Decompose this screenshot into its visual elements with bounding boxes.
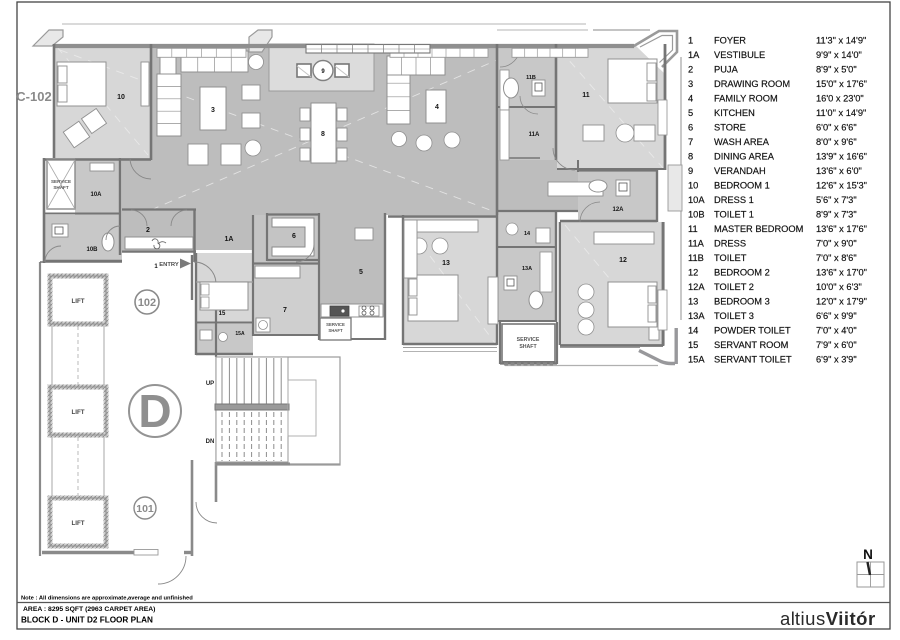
- svg-text:11: 11: [688, 224, 698, 234]
- svg-text:D: D: [138, 385, 171, 437]
- svg-text:TOILET 2: TOILET 2: [714, 282, 754, 292]
- svg-text:6'6" x 9'9": 6'6" x 9'9": [816, 311, 857, 321]
- svg-text:FAMILY ROOM: FAMILY ROOM: [714, 94, 778, 104]
- svg-text:11A: 11A: [688, 239, 705, 249]
- svg-text:POWDER TOILET: POWDER TOILET: [714, 326, 791, 336]
- svg-text:SERVANT TOILET: SERVANT TOILET: [714, 355, 792, 365]
- svg-text:SERVICE: SERVICE: [326, 322, 345, 327]
- svg-text:9'9" x 14'0": 9'9" x 14'0": [816, 50, 862, 60]
- svg-text:LIFT: LIFT: [71, 298, 84, 305]
- svg-text:8: 8: [688, 152, 693, 162]
- svg-text:SHAFT: SHAFT: [328, 328, 343, 333]
- svg-text:6: 6: [292, 233, 296, 240]
- svg-text:SERVICE: SERVICE: [517, 337, 540, 343]
- svg-text:11'3" x 14'9": 11'3" x 14'9": [816, 36, 866, 46]
- svg-text:12'6" x 15'3": 12'6" x 15'3": [816, 181, 867, 191]
- svg-text:10: 10: [117, 94, 125, 101]
- svg-text:15'0" x 17'6": 15'0" x 17'6": [816, 79, 867, 89]
- svg-text:DRESS: DRESS: [714, 239, 746, 249]
- svg-text:N: N: [863, 547, 873, 562]
- svg-text:11B: 11B: [526, 75, 536, 81]
- svg-text:SHAFT: SHAFT: [519, 344, 537, 350]
- svg-text:WASH AREA: WASH AREA: [714, 137, 770, 147]
- svg-text:2: 2: [146, 227, 150, 234]
- svg-text:DRESS 1: DRESS 1: [714, 195, 754, 205]
- svg-text:13A: 13A: [688, 311, 705, 321]
- svg-text:13A: 13A: [522, 266, 532, 272]
- svg-text:13'6" x 6'0": 13'6" x 6'0": [816, 166, 862, 176]
- svg-text:7'9" x 6'0": 7'9" x 6'0": [816, 340, 857, 350]
- svg-text:8'9" x 5'0": 8'9" x 5'0": [816, 65, 857, 75]
- svg-text:16'0 x 23'0": 16'0 x 23'0": [816, 94, 864, 104]
- svg-text:15A: 15A: [235, 331, 245, 337]
- svg-text:12: 12: [619, 257, 627, 264]
- svg-text:LIFT: LIFT: [71, 409, 84, 416]
- svg-text:11B: 11B: [688, 253, 704, 263]
- svg-text:101: 101: [136, 503, 154, 515]
- svg-text:8: 8: [321, 131, 325, 138]
- svg-text:3: 3: [211, 107, 215, 114]
- svg-text:7'0" x 4'0": 7'0" x 4'0": [816, 326, 857, 336]
- svg-text:1A: 1A: [225, 236, 234, 243]
- svg-text:altiusViitór: altiusViitór: [780, 608, 876, 629]
- svg-text:10'0" x 6'3": 10'0" x 6'3": [816, 282, 862, 292]
- svg-text:VESTIBULE: VESTIBULE: [714, 50, 765, 60]
- svg-text:3: 3: [688, 79, 693, 89]
- svg-text:8'9" x 7'3": 8'9" x 7'3": [816, 210, 857, 220]
- svg-text:13: 13: [688, 297, 698, 307]
- svg-text:4: 4: [688, 94, 693, 104]
- svg-text:BEDROOM 2: BEDROOM 2: [714, 268, 770, 278]
- svg-text:STORE: STORE: [714, 123, 746, 133]
- svg-text:C-102: C-102: [16, 89, 51, 104]
- svg-text:DRAWING ROOM: DRAWING ROOM: [714, 79, 790, 89]
- svg-text:TOILET 1: TOILET 1: [714, 210, 754, 220]
- svg-text:7'0" x 8'6": 7'0" x 8'6": [816, 253, 857, 263]
- svg-text:12'0" x 17'9": 12'0" x 17'9": [816, 297, 867, 307]
- svg-text:13'9" x 16'6": 13'9" x 16'6": [816, 152, 867, 162]
- svg-text:SHAFT: SHAFT: [53, 185, 69, 190]
- svg-text:10A: 10A: [90, 192, 102, 198]
- svg-text:TOILET: TOILET: [714, 253, 747, 263]
- svg-text:AREA : 8295 SQFT (2963 CARPET: AREA : 8295 SQFT (2963 CARPET AREA): [23, 606, 155, 613]
- svg-text:12: 12: [688, 268, 698, 278]
- svg-text:11A: 11A: [529, 132, 540, 138]
- svg-text:BLOCK D - UNIT D2 FLOOR PLA: BLOCK D - UNIT D2 FLOOR PLAN: [21, 616, 153, 625]
- svg-text:SERVICE: SERVICE: [51, 179, 71, 184]
- svg-text:5: 5: [359, 269, 363, 276]
- svg-text:5'6" x 7'3": 5'6" x 7'3": [816, 195, 857, 205]
- svg-text:12A: 12A: [612, 207, 624, 213]
- svg-text:12A: 12A: [688, 282, 705, 292]
- svg-text:10A: 10A: [688, 195, 705, 205]
- svg-text:11'0" x 14'9": 11'0" x 14'9": [816, 108, 866, 118]
- svg-text:15: 15: [688, 340, 698, 350]
- svg-text:9: 9: [688, 166, 693, 176]
- svg-text:ENTRY: ENTRY: [159, 262, 179, 268]
- svg-text:TOILET 3: TOILET 3: [714, 311, 754, 321]
- svg-text:LIFT: LIFT: [71, 520, 84, 527]
- svg-text:11: 11: [582, 92, 590, 99]
- svg-text:14: 14: [688, 326, 698, 336]
- svg-text:VERANDAH: VERANDAH: [714, 166, 766, 176]
- svg-text:13: 13: [442, 260, 450, 267]
- svg-text:10B: 10B: [86, 247, 98, 253]
- svg-text:SERVANT ROOM: SERVANT ROOM: [714, 340, 788, 350]
- svg-text:KITCHEN: KITCHEN: [714, 108, 755, 118]
- svg-text:13'6" x 17'0": 13'6" x 17'0": [816, 268, 867, 278]
- svg-text:PUJA: PUJA: [714, 65, 739, 75]
- svg-text:8'0" x 9'6": 8'0" x 9'6": [816, 137, 857, 147]
- svg-text:DN: DN: [206, 439, 215, 445]
- svg-text:FOYER: FOYER: [714, 36, 746, 46]
- svg-text:6: 6: [688, 123, 693, 133]
- svg-text:7: 7: [283, 307, 287, 314]
- svg-text:BEDROOM 3: BEDROOM 3: [714, 297, 770, 307]
- svg-text:6'9" x 3'9": 6'9" x 3'9": [816, 355, 857, 365]
- svg-text:BEDROOM 1: BEDROOM 1: [714, 181, 770, 191]
- svg-text:102: 102: [138, 297, 156, 309]
- svg-text:MASTER BEDROOM: MASTER BEDROOM: [714, 224, 803, 234]
- svg-text:2: 2: [688, 65, 693, 75]
- svg-text:14: 14: [524, 231, 531, 237]
- svg-text:1: 1: [688, 36, 693, 46]
- svg-text:13'6" x 17'6": 13'6" x 17'6": [816, 224, 867, 234]
- svg-text:Note : All dimensions are appr: Note : All dimensions are approximate,av…: [21, 596, 193, 602]
- svg-text:DINING AREA: DINING AREA: [714, 152, 775, 162]
- svg-text:6'0" x 6'6": 6'0" x 6'6": [816, 123, 857, 133]
- svg-text:10: 10: [688, 181, 698, 191]
- svg-text:15: 15: [219, 311, 226, 317]
- svg-text:15A: 15A: [688, 355, 705, 365]
- svg-text:1A: 1A: [688, 50, 700, 60]
- svg-text:7: 7: [688, 137, 693, 147]
- svg-text:UP: UP: [206, 381, 214, 387]
- svg-text:7'0" x 9'0": 7'0" x 9'0": [816, 239, 857, 249]
- svg-text:4: 4: [435, 104, 439, 111]
- svg-text:10B: 10B: [688, 210, 705, 220]
- svg-text:5: 5: [688, 108, 693, 118]
